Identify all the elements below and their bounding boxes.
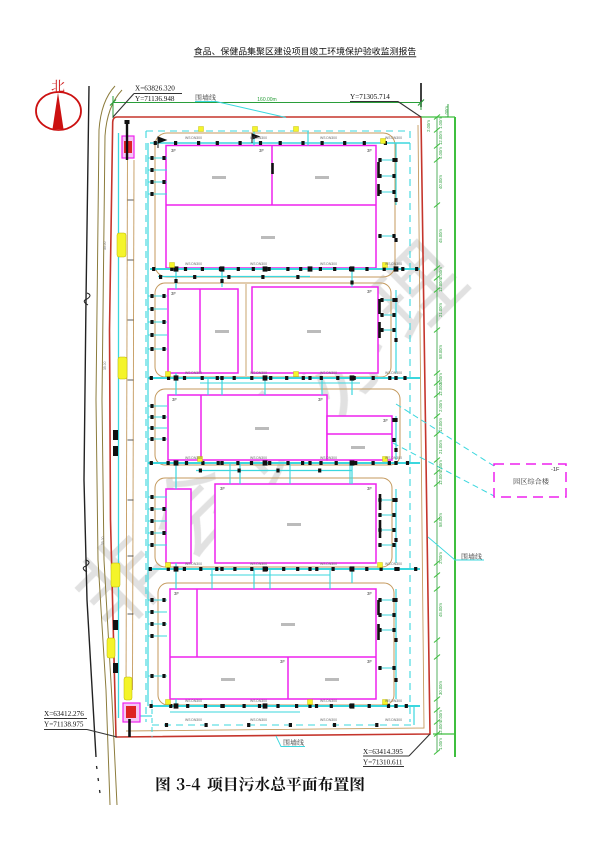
svg-text:12.00m: 12.00m (438, 721, 443, 735)
svg-text:3F: 3F (367, 289, 372, 294)
svg-text:12.00m: 12.00m (438, 382, 443, 396)
svg-text:WS DN300: WS DN300 (250, 699, 267, 703)
svg-text:WS DN300: WS DN300 (320, 371, 337, 375)
svg-text:3F: 3F (280, 659, 285, 664)
svg-text:3F: 3F (259, 148, 264, 153)
svg-text:WS DN300: WS DN300 (320, 699, 337, 703)
svg-text:12.00m: 12.00m (438, 131, 443, 145)
svg-text:45.00m: 45.00m (438, 603, 443, 617)
svg-text:2.00m: 2.00m (438, 552, 443, 564)
svg-text:WS DN300: WS DN300 (385, 562, 402, 566)
svg-text:WS DN300: WS DN300 (250, 562, 267, 566)
svg-text:30.00m: 30.00m (438, 681, 443, 695)
svg-text:WS DN300: WS DN300 (185, 136, 202, 140)
svg-text:X=63414.395: X=63414.395 (363, 748, 403, 756)
svg-text:WS DN300: WS DN300 (320, 718, 337, 722)
svg-text:WS DN300: WS DN300 (185, 262, 202, 266)
svg-text:3F: 3F (171, 148, 176, 153)
svg-text:WS DN300: WS DN300 (320, 136, 337, 140)
svg-text:35.00: 35.00 (101, 536, 105, 545)
svg-text:WS DN300: WS DN300 (185, 456, 202, 460)
svg-text:12.00m: 12.00m (438, 471, 443, 485)
svg-text:WS DN300: WS DN300 (250, 136, 267, 140)
svg-text:WS DN300: WS DN300 (320, 262, 337, 266)
svg-text:Y=71305.714: Y=71305.714 (350, 93, 390, 101)
svg-text:35.00: 35.00 (103, 241, 107, 250)
svg-text:12.00m: 12.00m (438, 418, 443, 432)
svg-text:3F: 3F (383, 418, 388, 423)
svg-text:Y=71138.975: Y=71138.975 (44, 721, 84, 729)
svg-text:2.00m: 2.00m (438, 460, 443, 472)
svg-text:40.00m: 40.00m (438, 175, 443, 189)
svg-text:3F: 3F (318, 397, 323, 402)
svg-text:WS DN300: WS DN300 (320, 456, 337, 460)
svg-text:4.00m: 4.00m (438, 147, 443, 159)
svg-text:WS DN300: WS DN300 (250, 371, 267, 375)
svg-text:160.00m: 160.00m (257, 97, 276, 103)
svg-text:WS DN300: WS DN300 (385, 718, 402, 722)
svg-text:1.00m: 1.00m (444, 106, 449, 118)
svg-text:WS DN300: WS DN300 (185, 718, 202, 722)
svg-text:X=63826.320: X=63826.320 (135, 85, 175, 93)
svg-text:2.00m: 2.00m (438, 710, 443, 722)
svg-text:WS DN300: WS DN300 (250, 718, 267, 722)
svg-text:WS DN300: WS DN300 (250, 456, 267, 460)
svg-text:WS DN300: WS DN300 (385, 699, 402, 703)
svg-text:WS DN300: WS DN300 (185, 371, 202, 375)
svg-text:WS DN300: WS DN300 (185, 699, 202, 703)
svg-text:WS DN300: WS DN300 (385, 262, 402, 266)
svg-text:1.00m: 1.00m (438, 117, 443, 129)
svg-text:3F: 3F (367, 148, 372, 153)
svg-text:2.00m: 2.00m (438, 267, 443, 279)
svg-text:3F: 3F (172, 397, 177, 402)
svg-text:58.00m: 58.00m (438, 513, 443, 527)
svg-text:WS DN300: WS DN300 (385, 456, 402, 460)
svg-text:1.00m: 1.00m (438, 738, 443, 750)
svg-text:12.00m: 12.00m (438, 278, 443, 292)
svg-text:58.00m: 58.00m (438, 345, 443, 359)
svg-text:21.00m: 21.00m (438, 303, 443, 317)
svg-text:21.00m: 21.00m (438, 440, 443, 454)
svg-text:-1F: -1F (551, 467, 560, 473)
svg-text:Y=71310.611: Y=71310.611 (363, 759, 403, 767)
svg-text:2.00m: 2.00m (438, 400, 443, 412)
svg-text:2.00m: 2.00m (426, 120, 431, 132)
svg-text:3F: 3F (367, 659, 372, 664)
svg-text:45.00m: 45.00m (438, 229, 443, 243)
svg-text:WS DN300: WS DN300 (250, 262, 267, 266)
svg-text:3F: 3F (174, 591, 179, 596)
svg-text:WS DN300: WS DN300 (385, 371, 402, 375)
svg-text:WS DN300: WS DN300 (385, 136, 402, 140)
svg-text:3F: 3F (367, 486, 372, 491)
svg-text:WS DN300: WS DN300 (185, 562, 202, 566)
svg-text:WS DN300: WS DN300 (320, 562, 337, 566)
svg-text:X=63412.276: X=63412.276 (44, 710, 84, 718)
svg-text:Y=71136.948: Y=71136.948 (135, 95, 175, 103)
svg-text:3F: 3F (171, 291, 176, 296)
svg-text:3F: 3F (367, 591, 372, 596)
svg-text:35.00: 35.00 (103, 361, 107, 370)
svg-text:3F: 3F (220, 486, 225, 491)
